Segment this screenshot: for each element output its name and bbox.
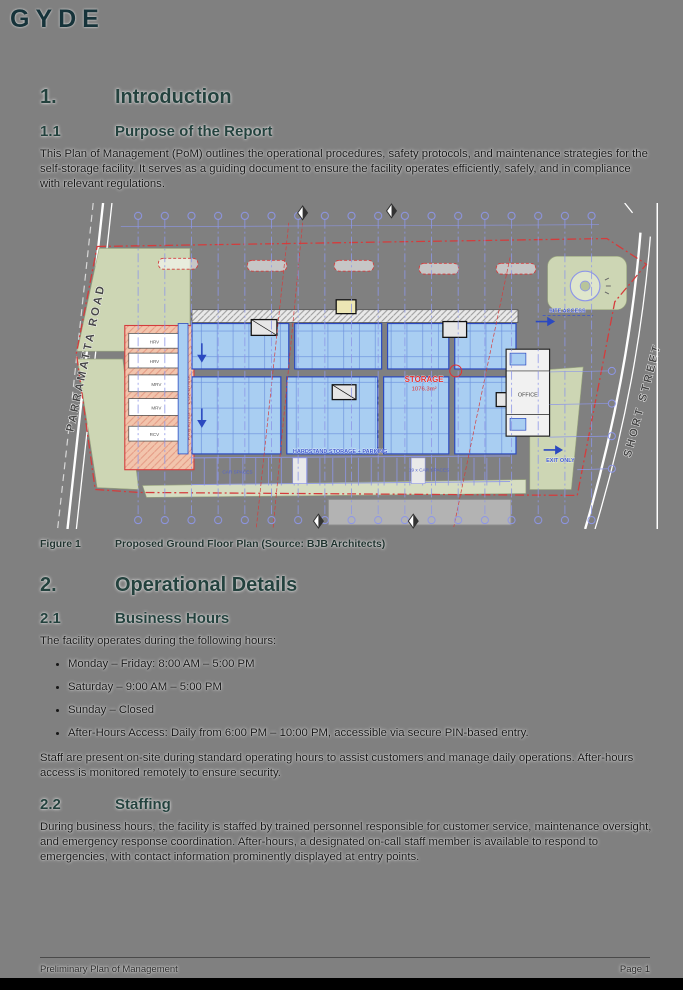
car-spaces-label: 19 x CAR SPACES [409, 468, 449, 474]
heading-number: 2.2 [40, 796, 115, 813]
business-hours-lead: The facility operates during the followi… [40, 634, 652, 649]
list-item: Sunday – Closed [68, 703, 652, 718]
document-body: 1. Introduction 1.1 Purpose of the Repor… [40, 86, 652, 865]
floor-plan-drawing: HRV HRV MRV MRV RCV PARKING / LOADING [40, 203, 665, 529]
car-spaces-label: CAR SPACES [222, 470, 252, 476]
structural-grid [121, 211, 601, 525]
heading-number: 1.1 [40, 123, 115, 140]
heading-title: Business Hours [115, 610, 229, 627]
heading-title: Introduction [115, 86, 232, 109]
staffing-paragraph: During business hours, the facility is s… [40, 820, 652, 865]
document-page: GYDE 1. Introduction 1.1 Purpose of the … [0, 0, 683, 990]
storage-label: STORAGE [405, 375, 444, 384]
page-footer: Preliminary Plan of Management Page 1 [40, 957, 650, 975]
section-2-heading: 2. Operational Details [40, 574, 652, 597]
staff-presence-paragraph: Staff are present on-site during standar… [40, 751, 652, 781]
purpose-paragraph: This Plan of Management (PoM) outlines t… [40, 147, 652, 192]
heading-title: Operational Details [115, 574, 297, 597]
section-1-1-heading: 1.1 Purpose of the Report [40, 123, 652, 140]
figure-caption-text: Proposed Ground Floor Plan (Source: BJB … [115, 538, 385, 550]
section-1-heading: 1. Introduction [40, 86, 652, 109]
storage-area-label: 1076.3m² [412, 387, 437, 393]
list-item: Monday – Friday: 8:00 AM – 5:00 PM [68, 657, 652, 672]
list-item: After-Hours Access: Daily from 6:00 PM –… [68, 726, 652, 741]
exit-only-label: EXIT ONLY [546, 458, 575, 464]
section-2-2-heading: 2.2 Staffing [40, 796, 652, 813]
list-item: Saturday – 9:00 AM – 5:00 PM [68, 680, 652, 695]
hardstand-label: HARDSTAND STORAGE + PARKING [293, 449, 388, 455]
figure-label: Figure 1 [40, 538, 115, 550]
heading-number: 2.1 [40, 610, 115, 627]
bottom-black-bar [0, 978, 683, 990]
floor-plan-figure: HRV HRV MRV MRV RCV PARKING / LOADING [40, 203, 665, 529]
heading-number: 1. [40, 86, 115, 109]
heading-title: Staffing [115, 796, 171, 813]
gyde-logo: GYDE [10, 5, 105, 34]
footer-page-number: Page 1 [620, 964, 650, 975]
section-2-1-heading: 2.1 Business Hours [40, 610, 652, 627]
site-access-label: SITE ACCESS [549, 309, 586, 315]
business-hours-list: Monday – Friday: 8:00 AM – 5:00 PM Satur… [40, 657, 652, 741]
footer-document-title: Preliminary Plan of Management [40, 964, 178, 975]
figure-caption: Figure 1 Proposed Ground Floor Plan (Sou… [40, 538, 652, 550]
heading-title: Purpose of the Report [115, 123, 273, 140]
heading-number: 2. [40, 574, 115, 597]
